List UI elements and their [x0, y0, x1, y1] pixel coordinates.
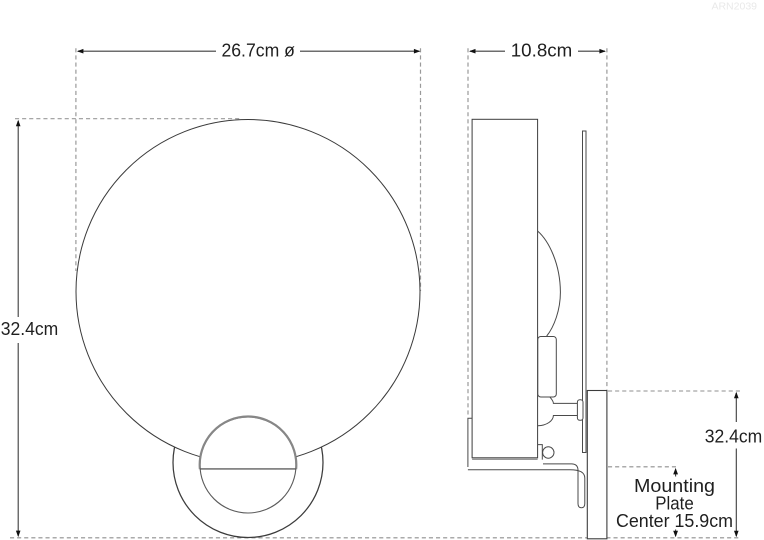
svg-text:32.4cm: 32.4cm: [705, 426, 763, 447]
svg-text:10.8cm: 10.8cm: [511, 40, 573, 61]
svg-text:32.4cm: 32.4cm: [1, 318, 59, 339]
svg-text:26.7cm ø: 26.7cm ø: [221, 40, 295, 61]
svg-text:Center 15.9cm: Center 15.9cm: [616, 510, 733, 531]
svg-text:ARN2039: ARN2039: [711, 1, 757, 13]
